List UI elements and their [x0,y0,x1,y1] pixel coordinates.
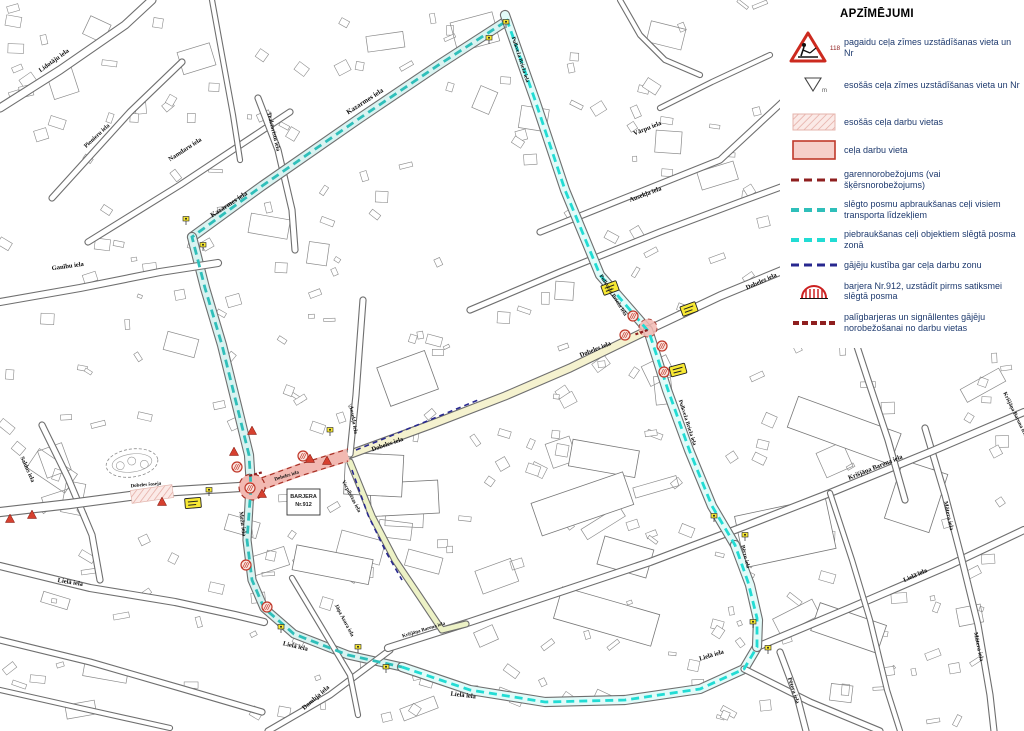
junction-work-zone [639,319,657,337]
street-surface [192,22,505,237]
note-box-text: Nr.912 [295,502,312,508]
traffic-scheme-page: Lidotāju ielaPionieru ielaNamdaru ielaTr… [0,0,1024,731]
legend-swatch-cell: m [786,75,842,95]
legend-swatch-dash_teal [790,205,838,215]
legend-title: APZĪMĒJUMI [840,8,1022,20]
route-flag-marker [327,428,333,437]
note-box: BARJERANr.912 [287,489,320,515]
street-label: Ganību iela [51,261,85,273]
legend-swatch-barrier912 [798,279,830,303]
street-label: Lielā iela [698,648,725,662]
detour-info-sign [680,302,698,317]
legend-item-label: barjera Nr.912, uzstādīt pirms satiksmei… [844,281,1022,302]
street-casing [620,0,700,75]
street-surface [0,566,264,622]
legend-item: slēgto posmu apbraukšanas ceļi visiem tr… [786,199,1022,220]
legend-swatch-cell [786,279,842,303]
legend-item-label: esošās ceļa zīmes uzstādīšanas vieta un … [844,80,1022,91]
legend-item: ceļa darbu vieta [786,140,1022,160]
route-flag-marker [183,217,189,226]
legend-swatch-cell [786,175,842,185]
legend-list: 118pagaidu ceļa zīmes uzstādīšanas vieta… [786,30,1022,333]
legend-item: barjera Nr.912, uzstādīt pirms satiksmei… [786,279,1022,303]
sign-number-note: 118 [830,45,840,52]
legend-item: gājēju kustība gar ceļa darbu zonu [786,260,1022,271]
legend-item: garennorobežojums (vai šķērsnorobežojums… [786,169,1022,190]
barrier-912-marker [628,311,638,321]
street-casing [925,428,994,731]
legend-swatch-cell [786,319,842,327]
temporary-sign-marker [247,426,256,435]
legend-swatch-tri_outline: m [801,75,827,95]
street-surface [52,62,182,198]
street-label: Vārpu iela [632,120,663,138]
street-surface [620,0,700,75]
legend-swatch-cell [786,235,842,245]
barrier-912-marker [298,451,308,461]
route-flag-marker [206,488,212,497]
detour-info-sign [185,497,202,508]
street-label: Namdaru iela [167,136,203,163]
legend-panel: APZĪMĒJUMI 118pagaidu ceļa zīmes uzstādī… [780,0,1024,348]
stadium [104,446,159,481]
legend-item: palīgbarjeras un signāllentes gājēju nor… [786,312,1022,333]
legend-swatch-dash_darkred [790,175,838,185]
barrier-912-marker [232,462,242,472]
legend-item-label: gājēju kustība gar ceļa darbu zonu [844,260,1022,271]
barrier-912-marker [241,560,251,570]
legend-item-label: ceļa darbu vieta [844,145,1022,156]
legend-swatch-cell: 118 [786,30,842,66]
legend-item: mesošās ceļa zīmes uzstādīšanas vieta un… [786,75,1022,95]
legend-item: esošās ceļa darbu vietas [786,113,1022,131]
legend-swatch-cell [786,260,842,270]
legend-item-label: esošās ceļa darbu vietas [844,117,1022,128]
street-surface [212,0,240,160]
detour-info-sign [669,363,687,377]
legend-swatch-dash_navy [790,260,838,270]
barrier-912-marker [262,602,272,612]
route-flag-marker [278,625,284,634]
temporary-sign-marker [229,447,238,456]
barrier-912-marker [620,330,630,340]
route-flag-marker [355,645,361,654]
barrier-912-marker [245,483,255,493]
street-surface [88,112,290,242]
legend-item: piebraukšanas ceļi objektiem slēgtā posm… [786,229,1022,250]
legend-swatch-dash_cyan [790,235,838,245]
barrier-912-marker [659,367,669,377]
street-surface [0,487,240,512]
legend-item-label: piebraukšanas ceļi objektiem slēgtā posm… [844,229,1022,250]
pedestrian-route [356,400,478,450]
legend-item-label: palīgbarjeras un signāllentes gājēju nor… [844,312,1022,333]
legend-item-label: pagaidu ceļa zīmes uzstādīšanas vieta un… [844,37,1022,58]
legend-swatch-cell [786,205,842,215]
legend-swatch-tri_worker [788,30,828,66]
legend-item-label: garennorobežojums (vai šķērsnorobežojums… [844,169,1022,190]
legend-swatch-cell [786,140,842,160]
legend-swatch-patch_solid [792,140,836,160]
legend-item: 118pagaidu ceļa zīmes uzstādīšanas vieta… [786,30,1022,66]
street-surface [0,690,170,728]
legend-swatch-aux_barrier [793,319,835,327]
svg-text:m: m [822,88,827,94]
legend-item-label: slēgto posmu apbraukšanas ceļi visiem tr… [844,199,1022,220]
route-flag-marker [486,36,492,45]
note-box-text: BARJERA [290,494,317,500]
street-label: Jāņa Asara iela [333,603,355,638]
route-flag-marker [383,665,389,674]
legend-swatch-cell [786,113,842,131]
street-label: Saldus iela [19,456,36,484]
barrier-912-marker [657,341,667,351]
legend-swatch-patch_hatch [792,113,836,131]
route-flag-marker [765,646,771,655]
